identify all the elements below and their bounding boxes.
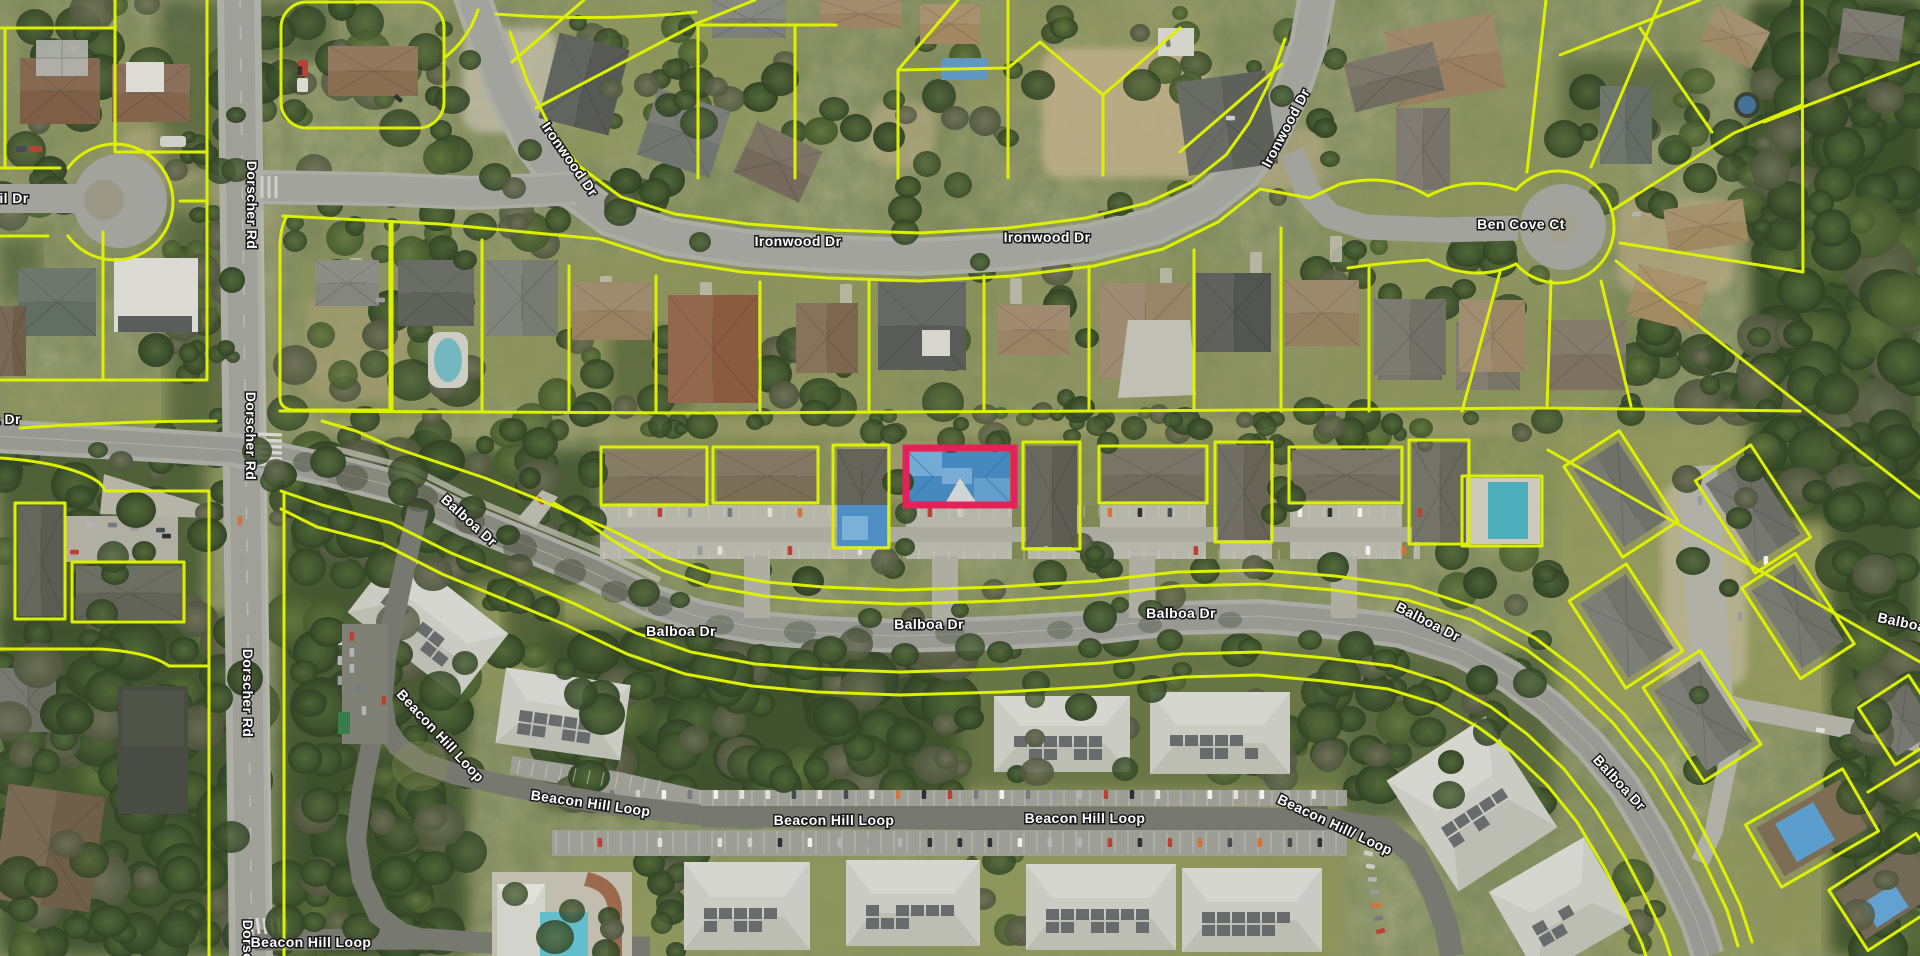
svg-text:Balboa Dr: Balboa Dr: [646, 623, 716, 639]
svg-text:Dorscher Rd: Dorscher Rd: [243, 392, 259, 480]
svg-text:il Dr: il Dr: [0, 190, 29, 206]
svg-text:Balboa Dr: Balboa Dr: [0, 411, 21, 427]
svg-text:Dorscher Rd: Dorscher Rd: [244, 161, 260, 249]
svg-text:Balboa Dr: Balboa Dr: [894, 616, 964, 632]
svg-text:Ben Cove Ct: Ben Cove Ct: [1477, 216, 1565, 232]
svg-text:Beacon Hill Loop: Beacon Hill Loop: [1025, 810, 1146, 826]
svg-text:Ironwood Dr: Ironwood Dr: [1004, 229, 1091, 245]
svg-text:Beacon Hill Loop: Beacon Hill Loop: [251, 934, 372, 950]
svg-text:Dorscher Rd: Dorscher Rd: [240, 649, 256, 737]
svg-text:Ironwood Dr: Ironwood Dr: [755, 233, 842, 249]
svg-text:Balboa Dr: Balboa Dr: [1146, 605, 1216, 621]
svg-text:Beacon Hill Loop: Beacon Hill Loop: [774, 812, 895, 828]
